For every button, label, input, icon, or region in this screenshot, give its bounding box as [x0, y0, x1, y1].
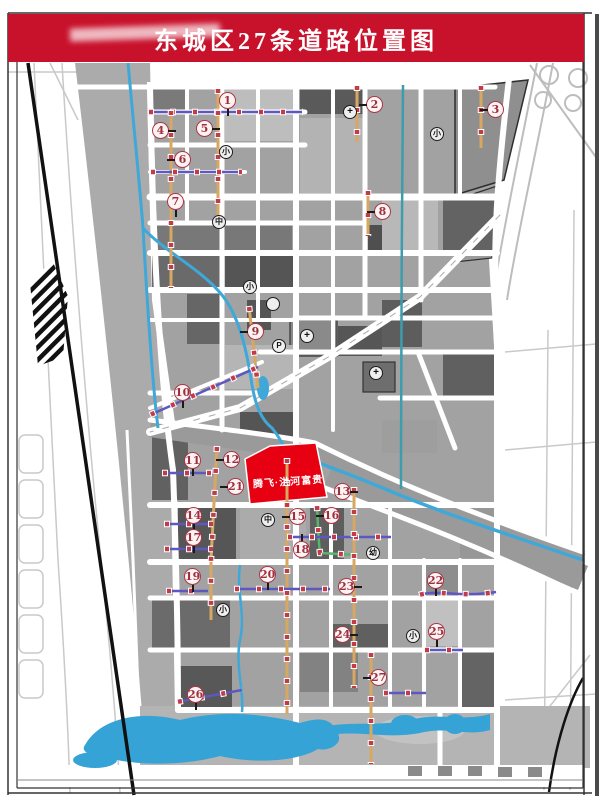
hospital-icon: +	[369, 366, 383, 380]
marker-tick	[436, 640, 438, 647]
road-number: 21	[228, 480, 243, 493]
road-number-marker: 9	[247, 323, 264, 340]
road-number: 7	[172, 195, 180, 208]
road-number-marker: 4	[152, 122, 169, 139]
marker-tick	[212, 128, 220, 130]
road-number: 8	[379, 205, 387, 218]
marker-tick	[182, 401, 184, 408]
road-number-marker: 20	[259, 566, 276, 583]
marker-tick	[267, 583, 269, 590]
marker-tick	[350, 491, 358, 493]
marker-tick	[350, 634, 358, 636]
marker-tick	[216, 459, 224, 461]
elementary-school-icon: 小	[243, 280, 257, 294]
road-number: 13	[335, 485, 350, 498]
road-number: 19	[185, 570, 200, 583]
road-number-marker: 8	[374, 203, 391, 220]
hatched-area	[30, 260, 68, 366]
road-number: 22	[428, 574, 443, 587]
road-number: 23	[339, 580, 354, 593]
district-map	[0, 0, 600, 800]
kindergarten-icon: 幼	[366, 546, 380, 560]
road-number: 27	[371, 671, 386, 684]
marker-tick	[227, 109, 229, 116]
middle-school-icon: 中	[212, 215, 226, 229]
road-number-marker: 11	[184, 452, 201, 469]
marker-tick	[367, 211, 375, 213]
road-number: 9	[252, 325, 260, 338]
road-number-marker: 2	[366, 96, 383, 113]
title-banner: 东城区27条道路位置图	[8, 14, 584, 62]
road-number-marker: 6	[174, 151, 191, 168]
road-number-marker: 24	[334, 626, 351, 643]
marker-tick	[435, 589, 437, 596]
road-number-marker: 22	[427, 572, 444, 589]
marker-tick	[168, 130, 176, 132]
road-number-marker: 23	[338, 578, 355, 595]
road-number-marker: 5	[196, 120, 213, 137]
marker-tick	[192, 585, 194, 592]
road-number: 4	[157, 124, 165, 137]
road-number: 25	[429, 625, 444, 638]
marker-tick	[282, 516, 290, 518]
road-number-marker: 16	[323, 507, 340, 524]
road-number-marker: 26	[187, 686, 204, 703]
road-number: 6	[179, 153, 187, 166]
landmark-icon	[266, 297, 280, 311]
marker-tick	[354, 586, 362, 588]
road-number-marker: 10	[174, 384, 191, 401]
marker-tick	[301, 534, 303, 541]
road-number-marker: 15	[289, 508, 306, 525]
hospital-icon: +	[343, 105, 357, 119]
elementary-school-icon: 小	[216, 603, 230, 617]
road-number: 15	[290, 510, 305, 523]
road-number-marker: 14	[185, 507, 202, 524]
hospital-icon: +	[300, 329, 314, 343]
marker-tick	[359, 104, 367, 106]
road-number: 3	[492, 103, 500, 116]
elementary-school-icon: 小	[406, 629, 420, 643]
marker-tick	[192, 469, 194, 476]
marker-tick	[480, 109, 488, 111]
marker-tick	[167, 159, 175, 161]
road-number: 26	[188, 688, 203, 701]
marker-tick	[220, 486, 228, 488]
road-number: 14	[186, 509, 201, 522]
road-number-marker: 25	[428, 623, 445, 640]
road-number: 24	[335, 628, 350, 641]
marker-tick	[363, 677, 371, 679]
road-number: 5	[201, 122, 209, 135]
road-number-marker: 27	[370, 669, 387, 686]
road-number-marker: 12	[223, 451, 240, 468]
elementary-school-icon: 小	[430, 127, 444, 141]
road-number: 18	[294, 543, 309, 556]
road-number: 12	[224, 453, 239, 466]
road-number-marker: 1	[219, 92, 236, 109]
road-number: 11	[185, 454, 200, 467]
road-number-marker: 17	[185, 529, 202, 546]
road-number-marker: 18	[293, 541, 310, 558]
road-number: 10	[175, 386, 190, 399]
map-page: 东城区27条道路位置图 腾飞·洪河富贵 1 2 3 4 5 6 7 8 9 10…	[0, 0, 600, 800]
road-number-marker: 19	[184, 568, 201, 585]
road-number: 17	[186, 531, 201, 544]
marker-tick	[316, 515, 324, 517]
middle-school-icon: 中	[261, 513, 275, 527]
road-number: 1	[224, 94, 232, 107]
marker-tick	[240, 331, 248, 333]
marker-tick	[195, 703, 197, 710]
road-number-marker: 7	[167, 193, 184, 210]
marker-tick	[193, 546, 195, 553]
road-number-marker: 13	[334, 483, 351, 500]
road-number: 20	[260, 568, 275, 581]
marker-tick	[175, 210, 177, 217]
road-number: 16	[324, 509, 339, 522]
road-number: 2	[371, 98, 379, 111]
parking-icon: P	[272, 339, 286, 353]
road-number-marker: 21	[227, 478, 244, 495]
road-number-marker: 3	[487, 101, 504, 118]
elementary-school-icon: 小	[219, 145, 233, 159]
